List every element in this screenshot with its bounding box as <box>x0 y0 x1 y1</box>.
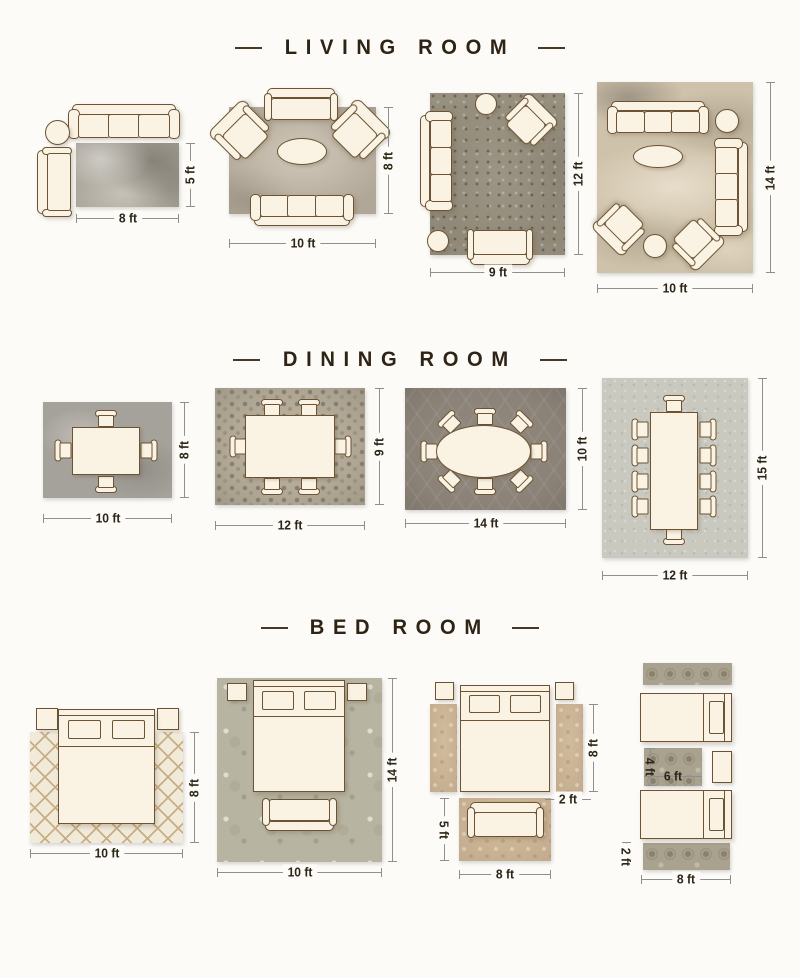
dining-chair <box>664 528 684 545</box>
height-dimension: 12 ft <box>570 93 586 255</box>
dining-chair <box>531 442 548 462</box>
pillow <box>510 695 541 713</box>
loveseat <box>467 228 533 265</box>
dimension-label: 8 ft <box>381 147 396 174</box>
section-title-living-room: LIVING ROOM <box>0 36 800 60</box>
dining-table <box>245 415 335 478</box>
foot-bench <box>262 797 337 831</box>
dining-chair <box>141 441 158 461</box>
dining-table <box>72 427 140 475</box>
rug-width-dimension: 8 ft <box>459 866 551 882</box>
dimension-label: 12 ft <box>273 518 307 533</box>
rug-size-guide: LIVING ROOM DINING ROOM BED ROOM 8 ft 5 … <box>0 0 800 978</box>
dining-chair <box>632 497 649 517</box>
loveseat <box>467 802 544 839</box>
width-dimension: 12 ft <box>215 517 365 533</box>
title-dash <box>540 359 567 361</box>
dining-chair <box>632 446 649 466</box>
sofa-three-seat <box>713 138 748 236</box>
sofa-three-seat <box>607 101 709 135</box>
dimension-label: 5 ft <box>183 161 198 188</box>
height-dimension: 5 ft <box>182 143 198 207</box>
dining-chair <box>632 420 649 440</box>
height-dimension: 8 ft <box>380 107 396 214</box>
dimension-label: 6 ft <box>661 769 685 784</box>
bed <box>58 709 155 824</box>
dining-chair <box>700 446 717 466</box>
dimension-label: 8 ft <box>177 436 192 463</box>
sofa-three-seat <box>250 193 354 226</box>
height-dimension: 14 ft <box>384 678 400 862</box>
pillow <box>709 798 724 831</box>
runner-rug-8x2 <box>643 663 732 685</box>
round-side-table <box>643 234 667 258</box>
bed <box>460 685 550 792</box>
dimension-label: 10 ft <box>89 846 123 861</box>
width-dimension: 9 ft <box>430 264 565 280</box>
headboard <box>724 694 731 741</box>
dimension-label: 14 ft <box>468 516 502 531</box>
width-dimension: 8 ft <box>76 210 179 226</box>
sofa-three-seat <box>68 104 180 140</box>
dimension-label: 10 ft <box>285 236 319 251</box>
dimension-label: 2 ft <box>619 843 634 870</box>
nightstand <box>36 708 58 730</box>
headboard <box>254 681 344 687</box>
height-dimension: 8 ft <box>186 732 202 843</box>
dimension-label: 8 ft <box>187 774 202 801</box>
width-dimension: 10 ft <box>30 845 183 861</box>
section-title-text: DINING ROOM <box>283 348 517 372</box>
dimension-label: 8 ft <box>586 734 601 761</box>
width-dimension: 12 ft <box>602 567 748 583</box>
nightstand <box>157 708 179 730</box>
dimension-label: 10 ft <box>90 511 124 526</box>
bed <box>253 680 345 792</box>
runner-rug-2x8 <box>556 704 583 792</box>
headboard <box>461 686 549 692</box>
dining-chair <box>299 399 319 416</box>
dining-chair <box>96 476 116 493</box>
nightstand <box>712 751 732 783</box>
dimension-label: 10 ft <box>575 432 590 466</box>
oval-dining-table <box>436 425 531 478</box>
dining-chair <box>96 410 116 427</box>
nightstand <box>347 683 367 701</box>
dining-chair <box>664 395 684 412</box>
dining-chair <box>299 478 319 495</box>
title-dash <box>261 627 288 629</box>
mid-rug-width-dimension: 6 ft <box>644 768 702 784</box>
runner-height-dimension: 2 ft <box>618 842 634 871</box>
pillow <box>304 691 336 710</box>
dining-chair <box>700 472 717 492</box>
title-dash <box>235 47 262 49</box>
dimension-label: 10 ft <box>282 865 316 880</box>
title-dash <box>538 47 565 49</box>
height-dimension: 9 ft <box>371 388 387 505</box>
dimension-label: 12 ft <box>658 568 692 583</box>
dimension-label: 9 ft <box>372 433 387 460</box>
height-dimension: 10 ft <box>574 388 590 510</box>
pillow <box>709 701 724 734</box>
headboard <box>59 710 154 716</box>
runner-height-dimension: 8 ft <box>585 704 601 792</box>
dining-chair <box>700 420 717 440</box>
nightstand <box>435 682 454 700</box>
section-title-text: LIVING ROOM <box>285 36 516 60</box>
height-dimension: 15 ft <box>754 378 770 558</box>
dimension-label: 8 ft <box>672 872 699 887</box>
pillow <box>68 720 101 739</box>
nightstand <box>227 683 247 701</box>
width-dimension: 10 ft <box>229 235 376 251</box>
dimension-label: 14 ft <box>385 753 400 787</box>
round-side-table <box>715 109 739 133</box>
runner-rug-2x8 <box>430 704 457 792</box>
dimension-label: 5 ft <box>437 816 452 843</box>
dining-table <box>650 412 698 530</box>
dimension-label: 14 ft <box>763 160 778 194</box>
dimension-label: 2 ft <box>554 792 581 807</box>
title-dash <box>233 359 260 361</box>
section-title-bed-room: BED ROOM <box>0 616 800 640</box>
section-title-dining-room: DINING ROOM <box>0 348 800 372</box>
width-dimension: 10 ft <box>43 510 172 526</box>
headboard <box>724 791 731 838</box>
dimension-label: 12 ft <box>571 157 586 191</box>
dimension-label: 9 ft <box>484 265 511 280</box>
dining-chair <box>632 472 649 492</box>
sofa-three-seat <box>420 111 454 211</box>
oval-coffee-table <box>633 145 683 168</box>
nightstand <box>555 682 574 700</box>
round-side-table <box>427 230 449 252</box>
dining-chair <box>421 442 438 462</box>
dining-chair <box>475 478 495 495</box>
pillow <box>112 720 145 739</box>
title-dash <box>512 627 539 629</box>
chaise-chair <box>37 147 73 217</box>
rug-height-dimension: 5 ft <box>436 798 452 861</box>
dining-chair <box>335 437 352 457</box>
height-dimension: 8 ft <box>176 402 192 498</box>
dimension-label: 8 ft <box>114 211 141 226</box>
rug-living-8x5 <box>76 143 179 207</box>
round-side-table <box>45 120 70 145</box>
twin-bed <box>640 790 732 839</box>
runner-rug-8x2 <box>643 843 730 870</box>
section-title-text: BED ROOM <box>310 616 490 640</box>
width-dimension: 10 ft <box>597 280 753 296</box>
runner-width-dimension: 8 ft <box>641 871 731 887</box>
dining-chair <box>55 441 72 461</box>
dining-chair <box>700 497 717 517</box>
runner-width-dimension: 2 ft <box>545 791 591 807</box>
dining-chair <box>230 437 247 457</box>
pillow <box>469 695 500 713</box>
twin-bed <box>640 693 732 742</box>
dining-chair <box>262 399 282 416</box>
oval-coffee-table <box>277 138 327 165</box>
dining-chair <box>262 478 282 495</box>
round-side-table <box>475 93 497 115</box>
width-dimension: 14 ft <box>405 515 566 531</box>
width-dimension: 10 ft <box>217 864 382 880</box>
height-dimension: 14 ft <box>762 82 778 273</box>
dining-chair <box>475 408 495 425</box>
pillow <box>262 691 294 710</box>
dimension-label: 10 ft <box>658 281 692 296</box>
dimension-label: 15 ft <box>755 451 770 485</box>
dimension-label: 8 ft <box>491 867 518 882</box>
loveseat <box>264 88 338 122</box>
